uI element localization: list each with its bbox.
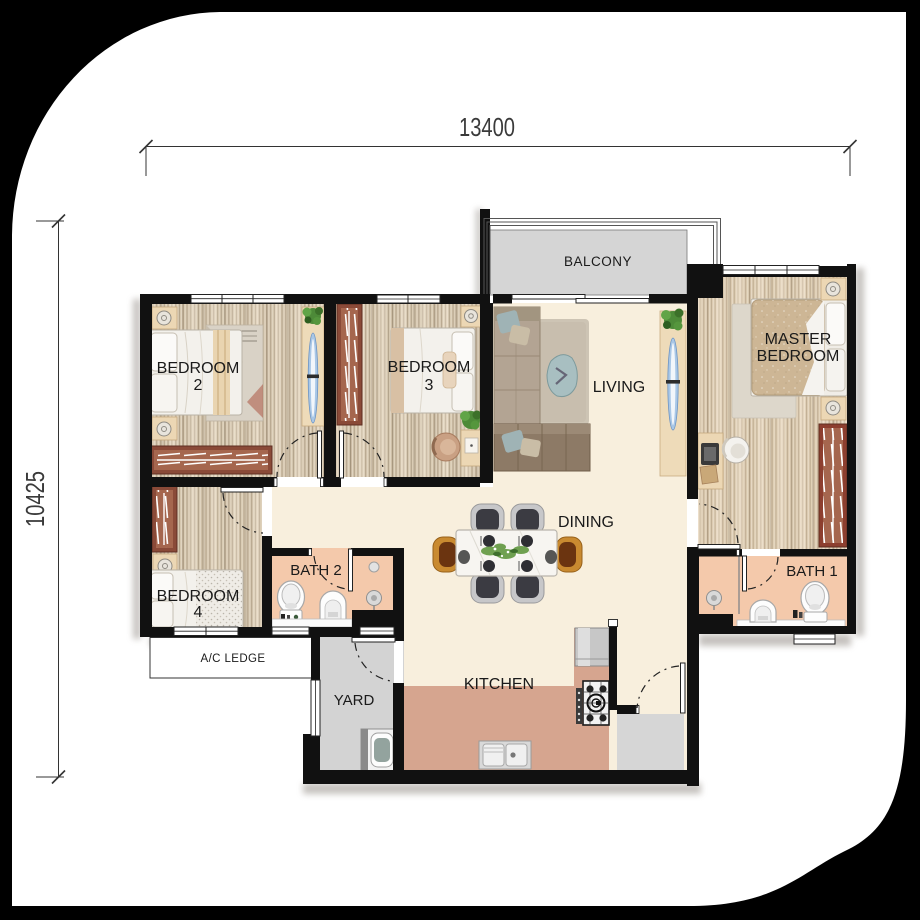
svg-text:KITCHEN: KITCHEN	[464, 676, 534, 693]
svg-text:BALCONY: BALCONY	[564, 254, 632, 269]
svg-text:BEDROOM: BEDROOM	[157, 588, 240, 605]
svg-text:3: 3	[425, 377, 434, 394]
svg-text:10425: 10425	[20, 471, 50, 527]
svg-text:MASTER: MASTER	[765, 331, 832, 348]
svg-text:BEDROOM: BEDROOM	[157, 360, 240, 377]
svg-text:13400: 13400	[459, 112, 515, 142]
svg-text:BEDROOM: BEDROOM	[757, 348, 840, 365]
svg-text:DINING: DINING	[558, 514, 614, 531]
svg-text:YARD: YARD	[334, 692, 375, 709]
svg-text:4: 4	[194, 604, 203, 621]
svg-text:LIVING: LIVING	[593, 379, 645, 396]
svg-text:BATH 1: BATH 1	[786, 563, 837, 580]
svg-text:BEDROOM: BEDROOM	[388, 359, 471, 376]
svg-text:2: 2	[194, 377, 203, 394]
svg-text:A/C LEDGE: A/C LEDGE	[201, 653, 266, 665]
svg-text:BATH 2: BATH 2	[290, 562, 341, 579]
